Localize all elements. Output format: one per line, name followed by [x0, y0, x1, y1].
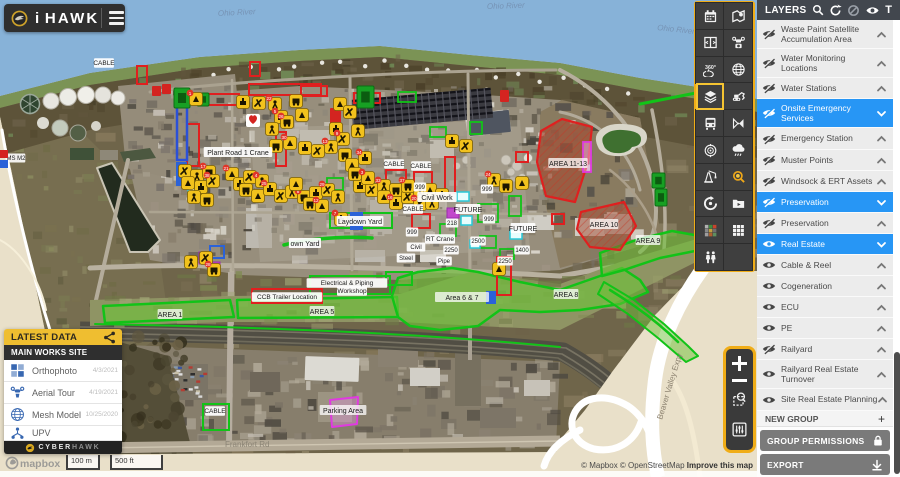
svg-text:AREA 5: AREA 5	[310, 309, 335, 316]
svg-text:12: 12	[313, 198, 319, 203]
svg-text:9: 9	[336, 131, 339, 136]
svg-text:999: 999	[482, 187, 493, 193]
svg-text:Workshop: Workshop	[337, 288, 367, 295]
svg-text:20: 20	[411, 196, 417, 201]
svg-text:999: 999	[415, 185, 426, 191]
svg-text:4: 4	[255, 173, 258, 178]
svg-text:1400: 1400	[515, 248, 529, 254]
svg-text:CABLE: CABLE	[93, 60, 115, 67]
svg-text:999: 999	[407, 230, 418, 236]
svg-text:Pipe: Pipe	[438, 259, 451, 265]
svg-text:21: 21	[223, 166, 229, 171]
svg-text:AREA 8: AREA 8	[554, 292, 579, 299]
svg-text:2250: 2250	[444, 248, 458, 254]
svg-text:AREA 11-13: AREA 11-13	[549, 161, 587, 168]
svg-text:360°: 360°	[705, 65, 716, 71]
svg-text:AREA 9: AREA 9	[636, 238, 661, 245]
svg-text:Ohio River: Ohio River	[487, 1, 525, 11]
svg-text:25: 25	[261, 181, 267, 186]
svg-text:218: 218	[447, 221, 458, 227]
svg-text:2250: 2250	[498, 259, 512, 265]
svg-text:FUTURE: FUTURE	[454, 207, 483, 214]
svg-text:Frankfort Rd: Frankfort Rd	[225, 440, 269, 449]
svg-text:29: 29	[319, 182, 325, 187]
svg-text:Plant Road 1 Crane: Plant Road 1 Crane	[207, 150, 269, 157]
svg-text:Electrical & Piping: Electrical & Piping	[321, 280, 374, 287]
svg-text:1: 1	[189, 91, 192, 96]
svg-text:999: 999	[484, 217, 495, 223]
svg-text:CABLE: CABLE	[410, 163, 432, 170]
svg-text:RT Crane: RT Crane	[426, 236, 454, 243]
svg-text:37: 37	[399, 178, 405, 183]
svg-text:FUTURE: FUTURE	[509, 226, 538, 233]
svg-text:16: 16	[387, 195, 393, 200]
svg-text:2500: 2500	[471, 239, 485, 245]
svg-text:5: 5	[274, 109, 277, 114]
svg-text:Laydown Yard: Laydown Yard	[338, 219, 382, 226]
svg-text:3: 3	[361, 170, 364, 175]
svg-text:mapbox: mapbox	[20, 458, 60, 470]
svg-text:7: 7	[334, 211, 337, 216]
svg-text:MS M2: MS M2	[6, 156, 26, 162]
svg-text:own Yard: own Yard	[291, 241, 320, 248]
svg-text:CCB Trailer Location: CCB Trailer Location	[257, 294, 317, 301]
svg-text:Area 6 & 7: Area 6 & 7	[445, 295, 478, 302]
svg-text:Civil: Civil	[410, 245, 421, 251]
svg-text:38: 38	[204, 173, 210, 178]
svg-text:34: 34	[356, 150, 362, 155]
svg-text:22: 22	[266, 96, 272, 101]
svg-text:CABLE: CABLE	[383, 161, 405, 168]
svg-text:28: 28	[205, 262, 211, 267]
svg-text:17: 17	[200, 164, 206, 169]
svg-text:CABLE: CABLE	[204, 408, 226, 415]
svg-text:AREA 10: AREA 10	[590, 222, 619, 229]
svg-text:Parking Area: Parking Area	[323, 408, 363, 415]
svg-text:Civil Work: Civil Work	[421, 195, 453, 202]
svg-text:AREA 1: AREA 1	[158, 312, 183, 319]
svg-text:CABLE: CABLE	[402, 206, 424, 213]
svg-text:33: 33	[375, 178, 381, 183]
svg-text:13: 13	[322, 139, 328, 144]
svg-text:24: 24	[485, 172, 491, 177]
svg-text:26: 26	[278, 114, 284, 119]
svg-text:30: 30	[281, 135, 287, 140]
svg-text:Steel: Steel	[399, 256, 413, 262]
